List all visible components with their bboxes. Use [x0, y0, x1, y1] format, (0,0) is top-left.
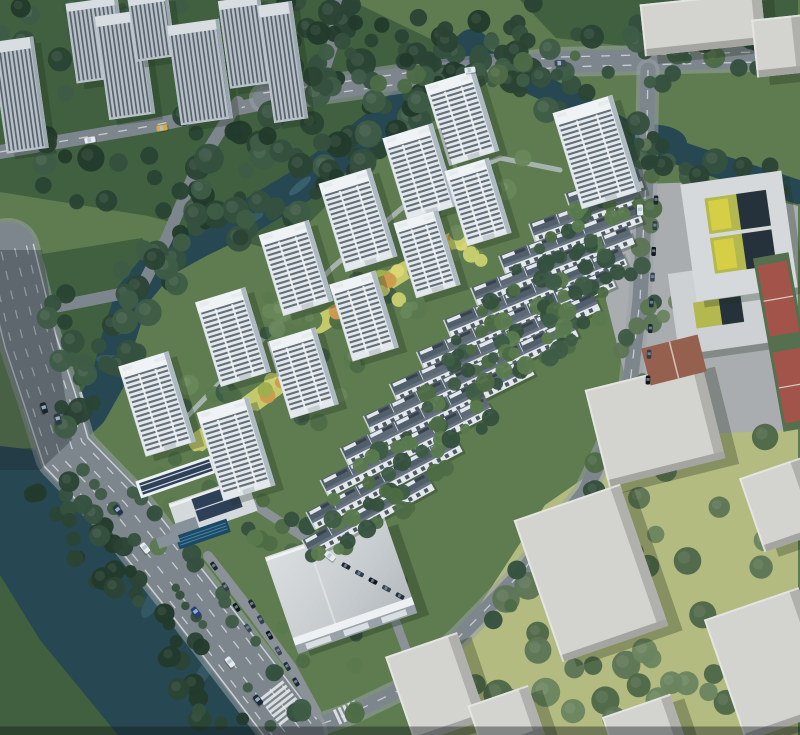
tree	[233, 230, 249, 246]
tree	[565, 334, 577, 346]
tree	[403, 502, 415, 514]
tree-highlight	[95, 571, 105, 581]
tree-highlight	[717, 694, 728, 705]
tree-highlight	[40, 310, 50, 320]
tree	[476, 373, 495, 392]
tree	[568, 286, 582, 300]
tree	[441, 353, 455, 367]
tree-highlight	[199, 148, 212, 161]
parked-car	[648, 324, 653, 333]
tree	[58, 149, 72, 163]
tree	[86, 395, 101, 410]
tree	[558, 302, 576, 320]
tree	[192, 703, 206, 717]
car-windshield	[653, 224, 656, 227]
tree	[109, 153, 128, 172]
tree-highlight	[596, 691, 609, 704]
tree-highlight	[359, 124, 371, 136]
tree	[353, 458, 368, 473]
tree	[431, 444, 445, 458]
tree-highlight	[542, 42, 552, 52]
tree	[520, 33, 536, 49]
tree-highlight	[292, 157, 303, 168]
tree	[551, 69, 563, 81]
tree-highlight	[52, 51, 63, 62]
tree	[124, 565, 137, 578]
tree	[555, 318, 572, 335]
tree	[271, 666, 284, 679]
tree-highlight	[537, 101, 549, 113]
tree	[578, 260, 593, 275]
tree	[207, 203, 224, 220]
tree	[428, 420, 439, 431]
car-windshield	[557, 61, 561, 66]
tree	[374, 17, 389, 32]
tree	[488, 352, 499, 363]
tree	[482, 409, 499, 426]
tree	[504, 599, 517, 612]
tree	[602, 66, 615, 79]
tree	[236, 713, 249, 726]
tree-highlight	[310, 25, 321, 36]
tree	[437, 460, 453, 476]
massing-block	[751, 13, 800, 86]
school-court-north-lawn	[708, 198, 732, 230]
tree	[175, 591, 184, 600]
tree	[484, 611, 503, 630]
tree	[592, 311, 608, 327]
tree	[570, 51, 581, 62]
tree	[218, 596, 231, 609]
tree	[91, 338, 106, 353]
tree	[247, 529, 264, 546]
fx-layer	[0, 727, 800, 735]
tree	[147, 170, 162, 185]
tree	[644, 76, 657, 89]
tree-highlight	[736, 160, 745, 169]
tree	[127, 486, 139, 498]
tree	[147, 508, 159, 520]
tree	[572, 244, 585, 257]
tree	[266, 197, 285, 216]
tree-highlight	[273, 143, 283, 153]
tree	[628, 317, 645, 334]
tree-highlight	[389, 123, 399, 133]
tree	[598, 287, 609, 298]
tree	[482, 293, 499, 310]
tree-highlight	[330, 135, 342, 147]
tree-highlight	[188, 206, 199, 217]
tree-highlight	[529, 641, 541, 653]
tree-highlight	[588, 455, 597, 464]
tree	[516, 74, 530, 88]
car-windshield	[638, 207, 643, 211]
tree-highlight	[693, 605, 705, 617]
tree	[95, 488, 107, 500]
tree	[140, 147, 158, 165]
tree-highlight	[530, 625, 540, 635]
tree	[343, 509, 361, 527]
tree	[475, 325, 488, 338]
tree	[225, 615, 239, 629]
tree	[57, 314, 73, 330]
tree	[54, 400, 68, 414]
masterplan-aerial-rendering	[0, 0, 800, 735]
tree-highlight	[587, 483, 596, 492]
tree	[66, 550, 83, 567]
tree	[633, 257, 651, 275]
tree	[399, 53, 413, 67]
tree	[311, 546, 326, 561]
tree	[345, 47, 357, 59]
tree	[507, 561, 526, 580]
tree	[437, 21, 453, 37]
tree	[62, 513, 77, 528]
tree	[451, 335, 462, 346]
tree	[238, 163, 254, 179]
car-windshield	[646, 378, 649, 381]
tree-highlight	[630, 677, 641, 688]
tree	[699, 683, 717, 701]
tree-highlight	[139, 303, 151, 315]
tree	[545, 274, 562, 291]
tree	[415, 445, 428, 458]
tree	[470, 400, 484, 414]
tree	[333, 544, 344, 555]
tree	[66, 532, 81, 547]
tree	[461, 363, 476, 378]
car-windshield	[649, 327, 652, 330]
tree-highlight	[226, 201, 238, 213]
tree-highlight	[584, 28, 595, 39]
tree	[324, 510, 342, 528]
tree-highlight	[706, 152, 718, 164]
tree	[730, 59, 748, 77]
car-windshield	[648, 352, 651, 355]
tree-highlight	[116, 312, 128, 324]
school-court-south-lawn	[713, 238, 737, 270]
parked-car	[647, 350, 652, 359]
tree	[511, 264, 521, 274]
tree	[284, 512, 299, 527]
tree-highlight	[496, 589, 508, 601]
tree	[622, 26, 640, 44]
tree	[646, 155, 659, 168]
tree-highlight	[645, 201, 654, 210]
tree	[508, 347, 519, 358]
tree	[351, 69, 366, 84]
tree-highlight	[322, 163, 332, 173]
tree	[35, 177, 52, 194]
tree	[496, 362, 513, 379]
tree-highlight	[534, 70, 543, 79]
tree-highlight	[163, 649, 172, 658]
tree-highlight	[53, 353, 63, 363]
parked-car	[654, 195, 659, 204]
tree	[258, 127, 276, 145]
tree	[58, 85, 74, 101]
car-windshield	[652, 249, 655, 252]
tree-highlight	[71, 402, 82, 413]
tree	[243, 682, 253, 692]
tree	[262, 291, 274, 303]
tree	[395, 29, 409, 43]
tree	[236, 210, 255, 229]
tree	[89, 479, 100, 490]
tree-highlight	[121, 343, 131, 353]
tree	[365, 34, 379, 48]
tree	[541, 349, 559, 367]
tree	[544, 254, 556, 266]
tree	[69, 194, 84, 209]
tree	[657, 310, 670, 323]
tree	[173, 234, 191, 252]
tree-highlight	[290, 204, 301, 215]
tree-highlight	[471, 13, 481, 23]
tree-highlight	[712, 500, 722, 510]
tree	[155, 202, 172, 219]
tree	[193, 639, 210, 656]
tree	[382, 467, 396, 481]
tree-highlight	[322, 4, 333, 15]
tree	[576, 316, 590, 330]
tree-highlight	[491, 68, 500, 77]
rendering-canvas	[0, 0, 800, 735]
tree-highlight	[756, 428, 768, 440]
tree-highlight	[171, 681, 181, 691]
parked-car	[650, 273, 655, 282]
tree-highlight	[64, 333, 75, 344]
parked-car	[646, 375, 651, 384]
tree	[410, 9, 427, 26]
tree	[572, 220, 585, 233]
tree	[371, 498, 385, 512]
tree	[345, 703, 365, 723]
tree-highlight	[157, 607, 166, 616]
tree	[584, 234, 598, 248]
tree	[258, 383, 273, 398]
tree	[181, 602, 190, 611]
tree	[102, 358, 119, 375]
car-windshield	[651, 275, 654, 278]
tree	[655, 139, 670, 154]
tree-highlight	[81, 149, 93, 161]
tree	[28, 484, 46, 502]
tree	[466, 344, 477, 355]
tree	[358, 520, 376, 538]
tree	[442, 430, 461, 449]
tree-highlight	[411, 94, 421, 104]
tree	[327, 493, 340, 506]
tree-highlight	[565, 703, 576, 714]
tree	[515, 150, 532, 167]
tree-highlight	[446, 65, 456, 75]
tree	[393, 453, 411, 471]
tree	[112, 261, 130, 279]
tree	[250, 636, 261, 647]
tree	[313, 133, 331, 151]
tree	[348, 15, 363, 30]
car-windshield	[467, 68, 471, 73]
tree	[198, 620, 207, 629]
tree	[604, 210, 620, 226]
tree	[542, 332, 554, 344]
tree	[292, 699, 311, 718]
tree	[402, 302, 413, 313]
tree-highlight	[663, 675, 673, 685]
tree	[534, 243, 545, 254]
tree	[545, 231, 557, 243]
tree	[269, 321, 286, 338]
tree-highlight	[62, 474, 71, 483]
tree	[347, 657, 364, 674]
parked-car	[649, 298, 654, 307]
tree	[508, 284, 520, 296]
tree-highlight	[92, 528, 102, 538]
tree	[640, 299, 657, 316]
tree	[296, 654, 310, 668]
tree	[578, 84, 595, 101]
car	[636, 204, 644, 216]
tree	[460, 424, 470, 434]
tree-highlight	[692, 168, 701, 177]
tree-highlight	[366, 93, 376, 103]
tree	[513, 52, 533, 72]
tree	[558, 290, 570, 302]
tree	[77, 354, 94, 371]
bottom-vignette	[0, 727, 800, 735]
tree	[128, 533, 142, 547]
tree-highlight	[252, 194, 262, 204]
tree-highlight	[678, 551, 690, 563]
tree-highlight	[147, 251, 157, 261]
car-windshield	[654, 198, 657, 201]
tree-highlight	[14, 1, 23, 10]
tree	[172, 182, 190, 200]
tree-highlight	[616, 655, 629, 668]
tree	[471, 45, 488, 62]
tree	[422, 401, 434, 413]
tree	[362, 476, 376, 490]
tree	[119, 290, 139, 310]
car-windshield	[650, 301, 653, 304]
tree	[132, 595, 144, 607]
tree	[318, 44, 334, 60]
tree	[334, 33, 351, 50]
school-court-north-shade	[736, 190, 771, 230]
tree-highlight	[753, 559, 764, 570]
tree	[517, 356, 536, 375]
parked-car	[651, 247, 656, 256]
car	[554, 60, 566, 68]
tree	[76, 463, 90, 477]
tree-highlight	[630, 115, 641, 126]
tree-highlight	[107, 580, 117, 590]
tree-highlight	[409, 46, 419, 56]
tree	[370, 75, 387, 92]
tree-highlight	[509, 44, 519, 54]
tree-highlight	[354, 153, 366, 165]
tree	[448, 377, 462, 391]
tree	[600, 272, 613, 285]
tree-highlight	[99, 193, 109, 203]
tree-highlight	[194, 182, 203, 191]
tree	[597, 248, 612, 263]
parked-car	[652, 221, 657, 230]
